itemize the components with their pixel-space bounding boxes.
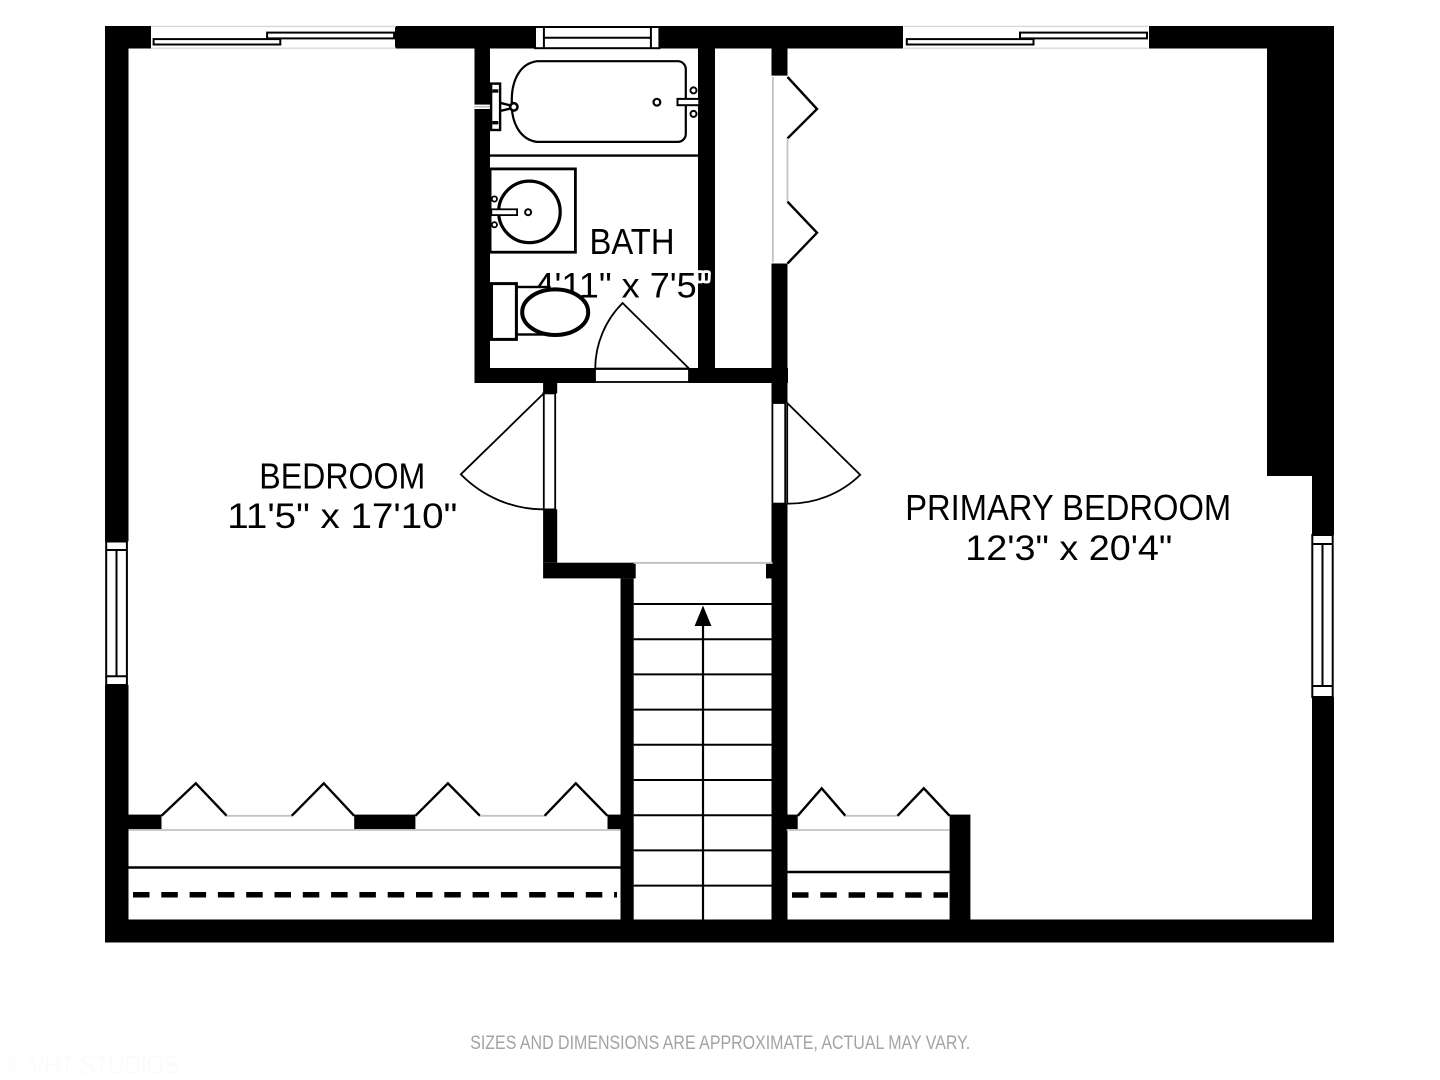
svg-text:BATH: BATH bbox=[590, 221, 675, 262]
svg-text:SIZES AND DIMENSIONS ARE APPRO: SIZES AND DIMENSIONS ARE APPROXIMATE, AC… bbox=[470, 1033, 970, 1054]
svg-text:© VHT STUDIOS: © VHT STUDIOS bbox=[7, 1050, 179, 1080]
svg-text:12'3" x 20'4": 12'3" x 20'4" bbox=[965, 529, 1172, 568]
svg-text:11'5" x 17'10": 11'5" x 17'10" bbox=[227, 497, 457, 536]
svg-text:PRIMARY BEDROOM: PRIMARY BEDROOM bbox=[905, 487, 1231, 528]
svg-text:BEDROOM: BEDROOM bbox=[259, 455, 425, 496]
